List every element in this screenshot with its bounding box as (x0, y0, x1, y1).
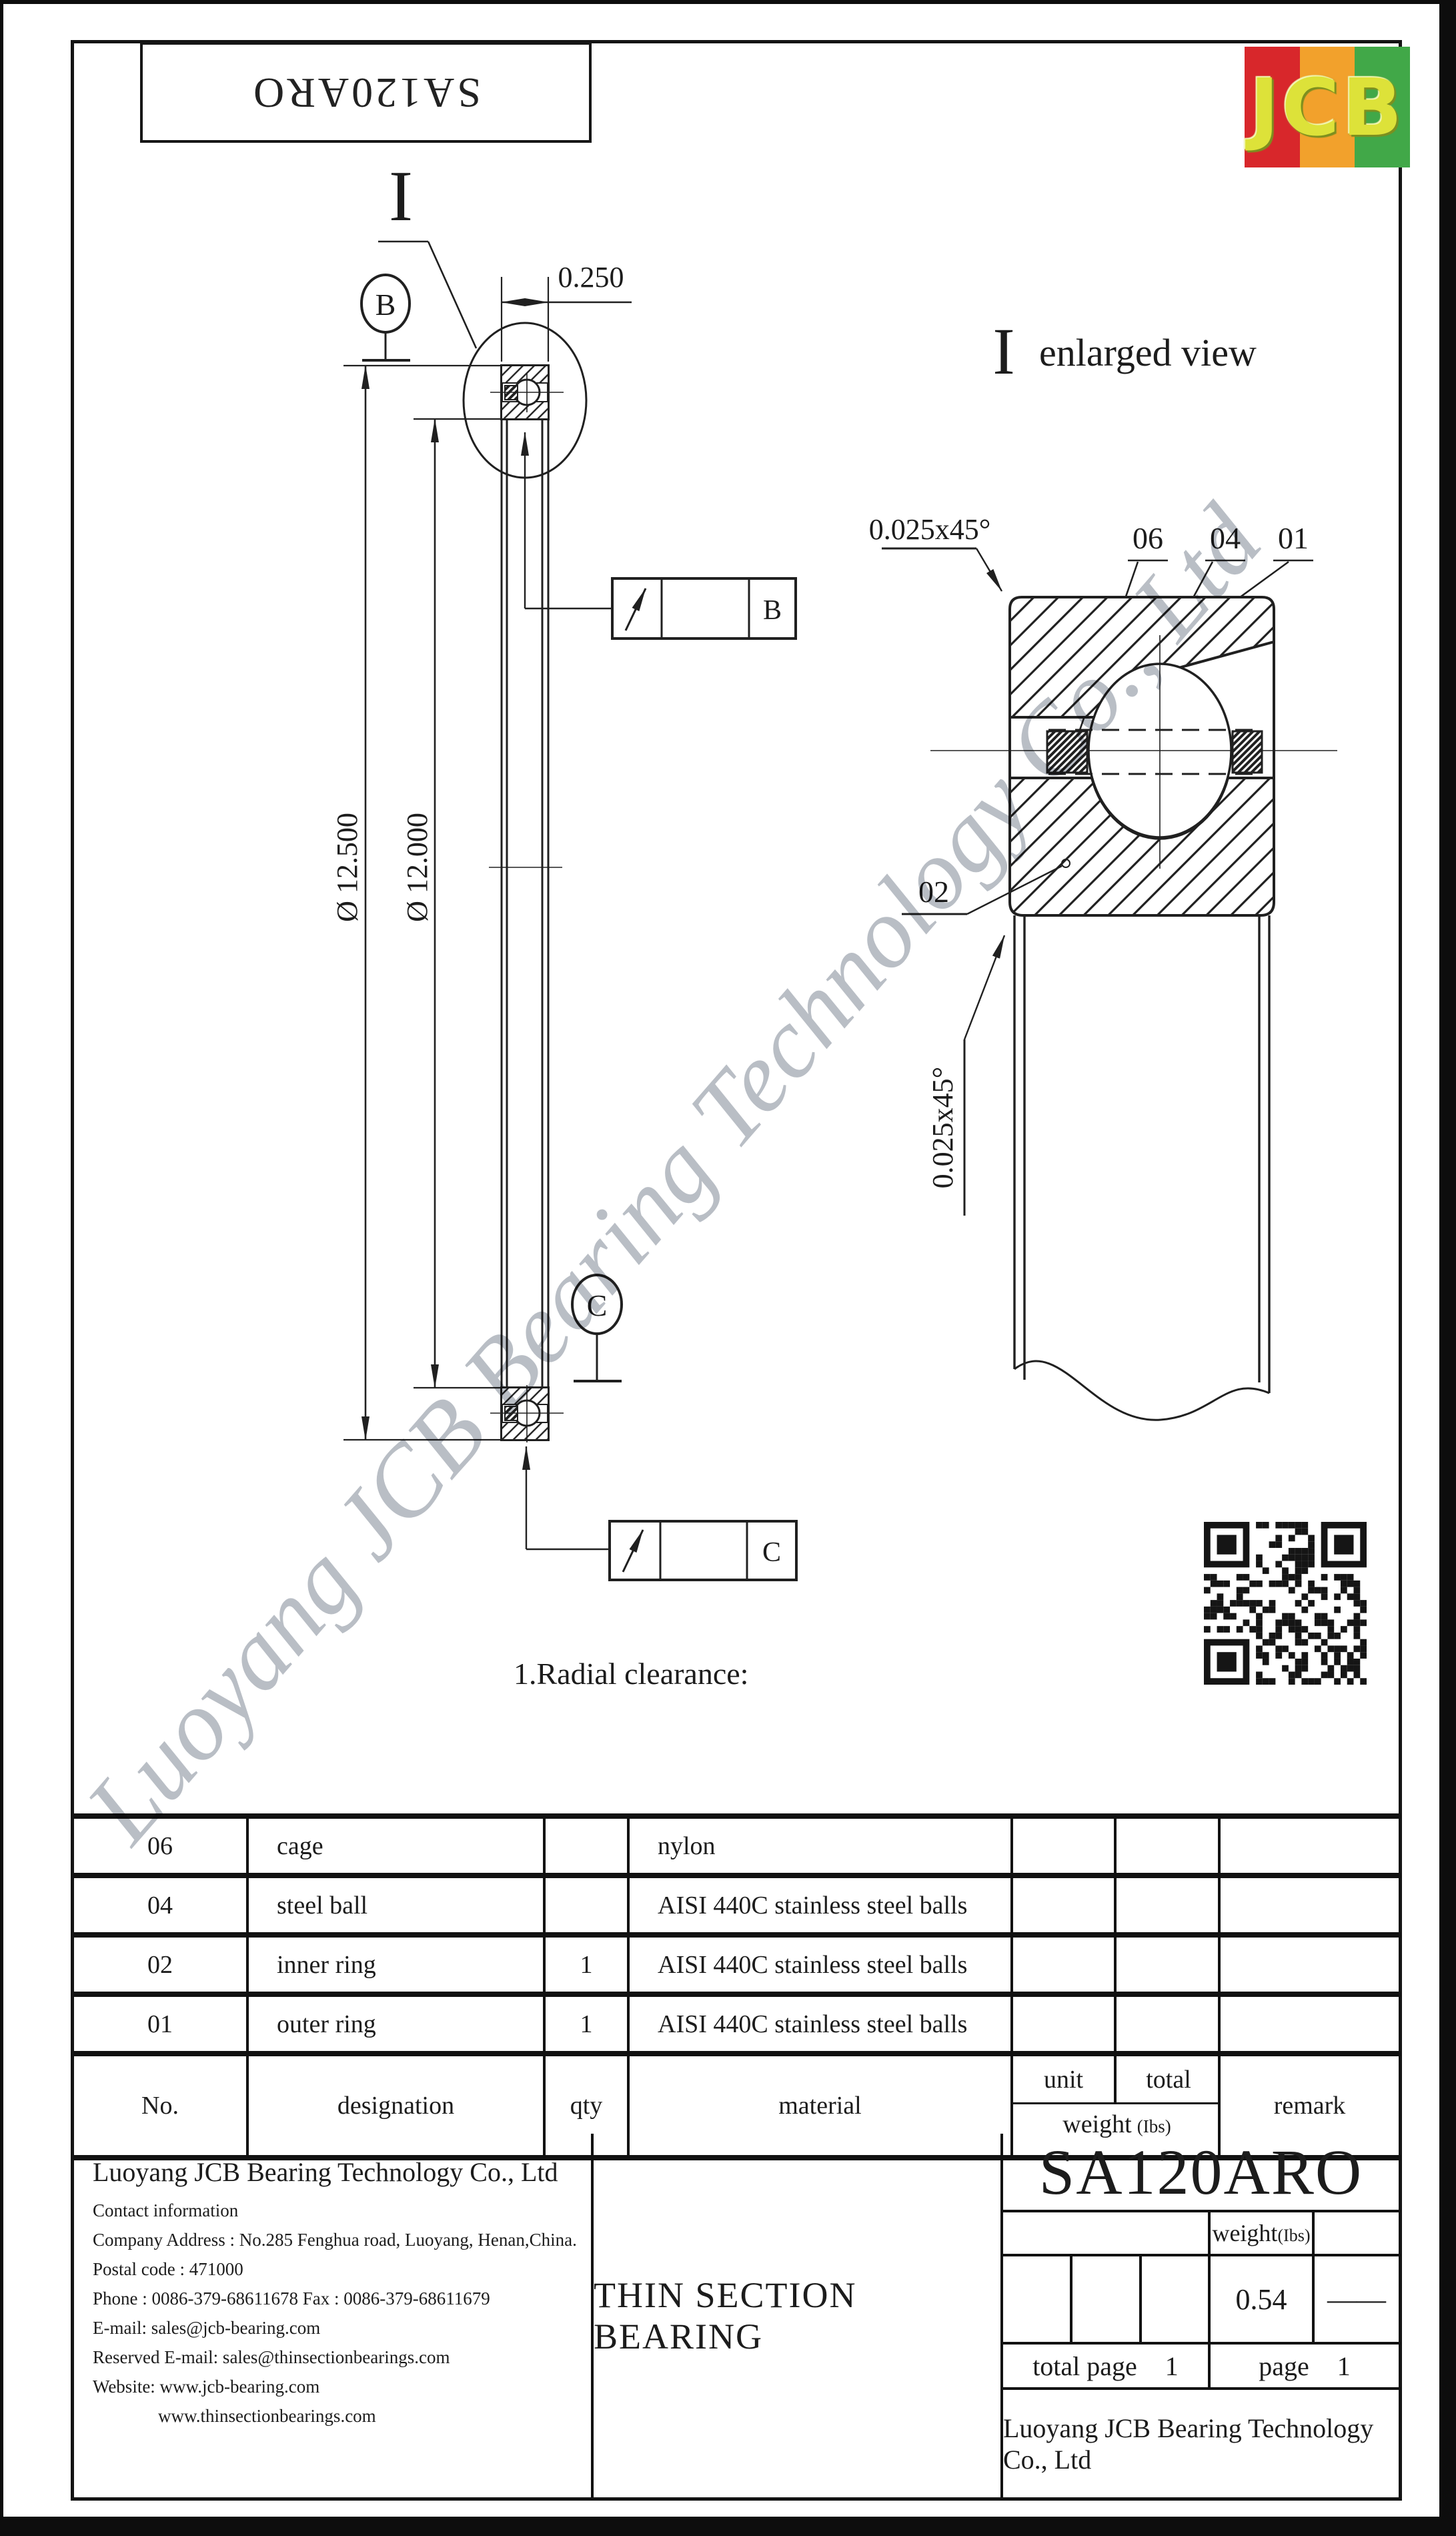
row-designation: inner ring (249, 1938, 546, 1992)
header-total: total (1117, 2056, 1221, 2102)
qr-code (1204, 1522, 1367, 1685)
bottom-section-block (490, 1385, 564, 1442)
datum-balloon-c-label: C (587, 1288, 608, 1322)
label-inner-ring: 02 (918, 875, 949, 909)
empty-cell (1072, 2256, 1142, 2342)
row-no: 01 (74, 1997, 249, 2051)
contact-line: Reserved E-mail: sales@thinsectionbearin… (93, 2347, 591, 2368)
total-page-label: total page (1032, 2351, 1137, 2382)
row-total-weight (1117, 1878, 1221, 1932)
left-view: I B 0.250 Ø 12.500 Ø (331, 157, 796, 1580)
weight-label-cell: weight(Ibs) (1211, 2212, 1315, 2254)
row-total-weight (1117, 1997, 1221, 2051)
row-remark (1221, 1878, 1399, 1932)
chamfer-note-side: 0.025x45° (926, 1067, 959, 1189)
weight-label: weight (1212, 2219, 1277, 2247)
ring-continuation (1014, 915, 1269, 1420)
parts-table: 06 cage nylon 04 steel ball AISI 440C st… (74, 1813, 1399, 2160)
row-material: AISI 440C stainless steel balls (630, 1997, 1013, 2051)
flag-c-label: C (762, 1537, 781, 1568)
weight-label-row: weight(Ibs) (1003, 2212, 1399, 2256)
weight-label-spacer (1003, 2212, 1211, 2254)
enlarged-view: I enlarged view 06 04 01 0.025x45° (869, 314, 1337, 1420)
row-material: nylon (630, 1819, 1013, 1873)
section-flag-c: C (526, 1446, 796, 1580)
cage-block-left (1047, 731, 1087, 773)
page-value: 1 (1337, 2351, 1351, 2382)
row-material: AISI 440C stainless steel balls (630, 1878, 1013, 1932)
chamfer-note-top: 0.025x45° (869, 513, 991, 546)
title-block-right: SA120ARO weight(Ibs) 0.54 —— total page … (1003, 2134, 1399, 2497)
row-no: 04 (74, 1878, 249, 1932)
top-section-block (490, 366, 564, 419)
cage-block-right (1233, 731, 1262, 773)
weight-value: 0.54 (1211, 2256, 1315, 2342)
detail-i-mark: I (389, 157, 413, 236)
empty-cell (1003, 2256, 1072, 2342)
weight-dash: —— (1315, 2256, 1399, 2342)
row-total-weight (1117, 1819, 1221, 1873)
drawing-sheet: { "sheet": { "part_number_reversed": "SA… (0, 0, 1456, 2536)
label-cage: 06 (1133, 521, 1163, 555)
weight-value-row: 0.54 —— (1003, 2256, 1399, 2345)
header-unit: unit (1013, 2056, 1117, 2102)
row-qty: 1 (546, 1938, 630, 1992)
weight-label-spacer (1315, 2212, 1399, 2254)
product-type: THIN SECTION BEARING (594, 2274, 1000, 2357)
row-material: AISI 440C stainless steel balls (630, 1938, 1013, 1992)
product-type-cell: THIN SECTION BEARING (594, 2134, 1003, 2497)
row-total-weight (1117, 1938, 1221, 1992)
page-cell: page 1 (1211, 2345, 1399, 2387)
total-page-value: 1 (1165, 2351, 1179, 2382)
row-remark (1221, 1819, 1399, 1873)
table-row: 01 outer ring 1 AISI 440C stainless stee… (74, 1997, 1399, 2056)
table-row: 04 steel ball AISI 440C stainless steel … (74, 1878, 1399, 1938)
total-page-cell: total page 1 (1003, 2345, 1211, 2387)
row-remark (1221, 1997, 1399, 2051)
contact-line: Phone : 0086-379-68611678 Fax : 0086-379… (93, 2288, 591, 2309)
row-designation: cage (249, 1819, 546, 1873)
pages-row: total page 1 page 1 (1003, 2345, 1399, 2390)
title-block: Luoyang JCB Bearing Technology Co., Ltd … (74, 2134, 1399, 2497)
row-unit-weight (1013, 1819, 1117, 1873)
row-qty (546, 1819, 630, 1873)
label-ball: 04 (1210, 521, 1241, 555)
enlarged-title-mark: I (992, 314, 1014, 388)
enlarged-title-text: enlarged view (1039, 331, 1257, 374)
table-row: 02 inner ring 1 AISI 440C stainless stee… (74, 1938, 1399, 1997)
contact-line: Website: www.jcb-bearing.com (93, 2377, 591, 2397)
break-line (1014, 1361, 1269, 1420)
scan-edge-bottom (0, 2517, 1456, 2536)
row-designation: steel ball (249, 1878, 546, 1932)
row-designation: outer ring (249, 1997, 546, 2051)
dim-outer-diameter-text: Ø 12.500 (331, 813, 363, 922)
section-flag-b: B (525, 432, 796, 639)
label-outer-ring: 01 (1278, 521, 1309, 555)
footer-company: Luoyang JCB Bearing Technology Co., Ltd (1003, 2390, 1399, 2497)
part-number-title: SA120ARO (1003, 2134, 1399, 2212)
row-qty: 1 (546, 1997, 630, 2051)
dim-width-text: 0.250 (558, 261, 624, 294)
company-name: Luoyang JCB Bearing Technology Co., Ltd (93, 2156, 591, 2188)
contact-line: www.thinsectionbearings.com (93, 2406, 591, 2427)
page-label: page (1259, 2351, 1309, 2382)
table-row: 06 cage nylon (74, 1819, 1399, 1878)
row-no: 06 (74, 1819, 249, 1873)
contact-line: Company Address : No.285 Fenghua road, L… (93, 2230, 591, 2250)
row-no: 02 (74, 1938, 249, 1992)
row-remark (1221, 1938, 1399, 1992)
row-unit-weight (1013, 1878, 1117, 1932)
dim-bore-diameter-text: Ø 12.000 (401, 813, 434, 922)
contact-line: Postal code : 471000 (93, 2259, 591, 2280)
contact-line: Contact information (93, 2200, 591, 2221)
contact-line: E-mail: sales@jcb-bearing.com (93, 2318, 591, 2339)
empty-cell (1142, 2256, 1211, 2342)
weight-unit: (Ibs) (1277, 2226, 1310, 2246)
row-unit-weight (1013, 1997, 1117, 2051)
row-unit-weight (1013, 1938, 1117, 1992)
radial-clearance-note: 1.Radial clearance: (514, 1656, 748, 1691)
company-info: Luoyang JCB Bearing Technology Co., Ltd … (74, 2134, 594, 2497)
flag-b-label: B (763, 595, 782, 626)
datum-balloon-b-label: B (376, 288, 396, 322)
row-qty (546, 1878, 630, 1932)
